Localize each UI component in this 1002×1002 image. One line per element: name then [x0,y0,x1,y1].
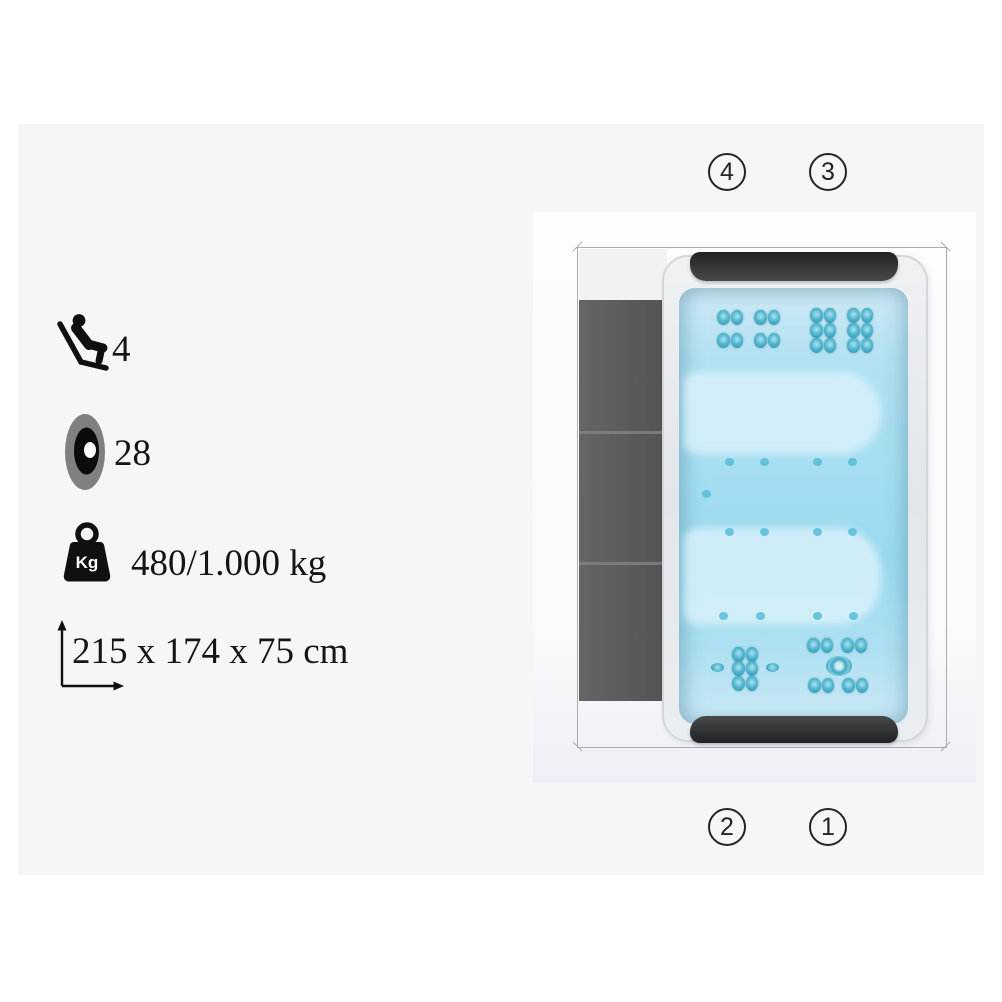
jet-pair [754,333,780,348]
callout-2: 2 [708,808,746,846]
spa-top-view-figure [533,212,976,783]
floor-dot [848,458,857,466]
floor-dot [849,612,858,620]
jet-pair [810,323,836,338]
jet-pair [732,661,758,676]
tub-seat-top [684,372,881,454]
cover-seam [579,431,668,434]
callout-1-label: 1 [821,813,835,842]
cover-seam [579,562,668,565]
jet-pair [808,678,834,693]
jet-single [766,663,779,672]
jet-pair [732,676,758,691]
jet-pair [754,310,780,325]
callout-4: 4 [708,153,746,191]
jet-single [711,663,724,672]
recliner-seat-icon [53,312,113,381]
jet-pair [847,308,873,323]
jet-pair [847,323,873,338]
jet-nozzle-icon [64,413,106,496]
jet-pair [810,338,836,353]
jet-pair [847,338,873,353]
floor-dot [813,612,822,620]
floor-dot [702,490,711,498]
spec-sheet-page: 4 28 Kg 480/1.000 kg 215 x 174 x 75 cm 4 [0,0,1002,1002]
weight-value: 480/1.000 kg [131,542,326,586]
floor-dot [725,458,734,466]
jet-pair [841,638,867,653]
jet-pair [810,308,836,323]
headrest-bottom [690,716,898,743]
callout-4-label: 4 [720,158,734,187]
floor-dot [760,528,769,536]
floor-dot [719,612,728,620]
cabinet-top-band [579,249,667,300]
seats-value: 4 [112,328,131,372]
side-cover-panel [579,300,668,701]
jet-pair [807,638,833,653]
jet-large [826,656,852,676]
callout-3-label: 3 [821,158,835,187]
jet-pair [732,647,758,662]
callout-3: 3 [809,153,847,191]
floor-dot [813,458,822,466]
callout-2-label: 2 [720,813,734,842]
kg-badge-text: Kg [76,553,99,572]
jets-value: 28 [114,432,151,476]
jet-pair [717,310,743,325]
weight-kg-icon: Kg [54,521,120,592]
dimensions-value: 215 x 174 x 75 cm [72,630,348,674]
floor-dot [760,458,769,466]
jet-pair [842,678,868,693]
jet-pair [717,333,743,348]
tub-water [679,288,908,724]
callout-1: 1 [809,808,847,846]
floor-dot [848,528,857,536]
floor-dot [725,528,734,536]
floor-dot [813,528,822,536]
headrest-top [690,252,898,281]
floor-dot [756,612,765,620]
tub-seat-bottom [684,528,881,625]
